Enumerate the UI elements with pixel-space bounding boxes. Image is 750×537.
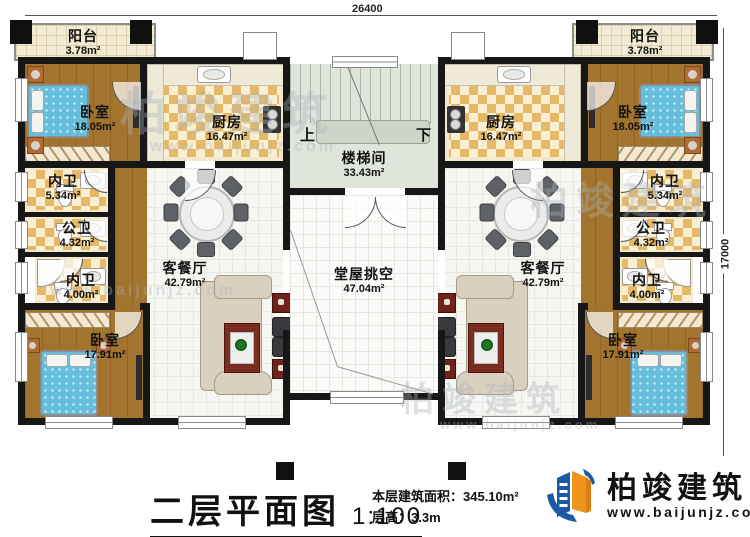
dimension-top-value: 26400	[348, 3, 387, 15]
dimension-right-value: 17000	[719, 235, 731, 274]
wall	[578, 310, 585, 425]
room-label-kitchen-right: 厨房 16.47m²	[456, 114, 546, 144]
wardrobe	[618, 312, 703, 328]
stair-up-label: 上	[300, 124, 315, 145]
column	[696, 20, 718, 44]
window	[332, 56, 398, 68]
chair	[513, 242, 531, 257]
stair-down-label: 下	[416, 124, 431, 145]
room-label-public-bath-right: 公卫 4.32m²	[606, 220, 696, 250]
window	[700, 78, 713, 122]
wall	[578, 303, 588, 310]
wall	[438, 57, 445, 195]
wall	[405, 188, 445, 195]
wall	[438, 330, 445, 425]
room-label-bedroom-bottom-right: 卧室 17.91m²	[578, 332, 668, 362]
column-marker	[448, 462, 466, 480]
window	[482, 416, 550, 429]
wall	[283, 188, 345, 195]
room-label-kitchen-left: 厨房 16.47m²	[182, 114, 272, 144]
duct-shaft	[451, 32, 485, 60]
pillow	[684, 90, 697, 111]
room-label-public-bath-left: 公卫 4.32m²	[32, 220, 122, 250]
room-label-bedroom-top-right: 卧室 18.05m²	[588, 104, 678, 134]
plant	[235, 339, 247, 351]
nightstand	[684, 66, 701, 83]
window	[700, 221, 713, 249]
floor-plan-canvas: 26400 17000	[0, 0, 750, 537]
column	[576, 20, 598, 44]
floor-height-line: 层高：3.3m	[372, 508, 519, 529]
chair	[550, 204, 565, 222]
logo-text: 柏竣建筑 www.baijunjz.com	[607, 473, 750, 521]
pillow	[684, 112, 697, 133]
room-label-bath5-left: 内卫 5.34m²	[18, 173, 108, 203]
room-label-bath5-right: 内卫 5.34m²	[620, 173, 710, 203]
nightstand	[684, 137, 701, 154]
stair-treads	[290, 64, 438, 124]
room-label-bedroom-top-left: 卧室 18.05m²	[50, 104, 140, 134]
room-label-bath4-left: 内卫 4.00m²	[36, 272, 126, 302]
wall	[613, 303, 710, 310]
wall	[543, 161, 710, 168]
room-label-bedroom-bottom-left: 卧室 17.91m²	[60, 332, 150, 362]
room-label-balcony-left: 阳台 3.78m²	[38, 28, 128, 58]
wall	[620, 252, 710, 257]
wall	[620, 212, 710, 217]
room-label-balcony-right: 阳台 3.78m²	[600, 28, 690, 58]
sofa-set	[433, 275, 528, 395]
kitchen-counter	[564, 64, 581, 163]
window	[700, 332, 713, 382]
room-label-living-right: 客餐厅 42.79m²	[498, 260, 588, 290]
sofa	[456, 371, 514, 395]
window	[700, 262, 713, 294]
room-label-hall-void: 堂屋挑空 47.04m²	[319, 266, 409, 296]
room-label-stairwell: 楼梯间 33.43m²	[319, 150, 409, 180]
drawing-info: 本层建筑面积：345.10m² 层高：3.3m	[372, 487, 519, 529]
logo-building-icon	[543, 463, 599, 530]
wall	[438, 161, 513, 168]
logo-name: 柏竣建筑	[607, 473, 750, 505]
room-label-living-left: 客餐厅 42.79m²	[140, 260, 230, 290]
room-label-bath4-right: 内卫 4.00m²	[602, 272, 692, 302]
floor-plan: 阳台 3.78m² 阳台 3.78m² 卧室 18.05m² 卧室 18.05m…	[10, 20, 720, 450]
logo-site: www.baijunjz.com	[607, 504, 750, 520]
wall	[438, 195, 445, 250]
chair	[480, 204, 495, 222]
column-marker	[276, 462, 294, 480]
floor-area-line: 本层建筑面积：345.10m²	[372, 487, 519, 508]
company-logo: 柏竣建筑 www.baijunjz.com	[543, 463, 750, 530]
dimension-line-top	[25, 15, 717, 16]
page-title: 二层平面图	[150, 484, 340, 533]
window	[330, 391, 404, 404]
plant	[481, 339, 493, 351]
kitchen-sink	[497, 66, 531, 83]
side-table	[436, 293, 456, 313]
wall	[581, 57, 588, 168]
window	[615, 416, 683, 429]
